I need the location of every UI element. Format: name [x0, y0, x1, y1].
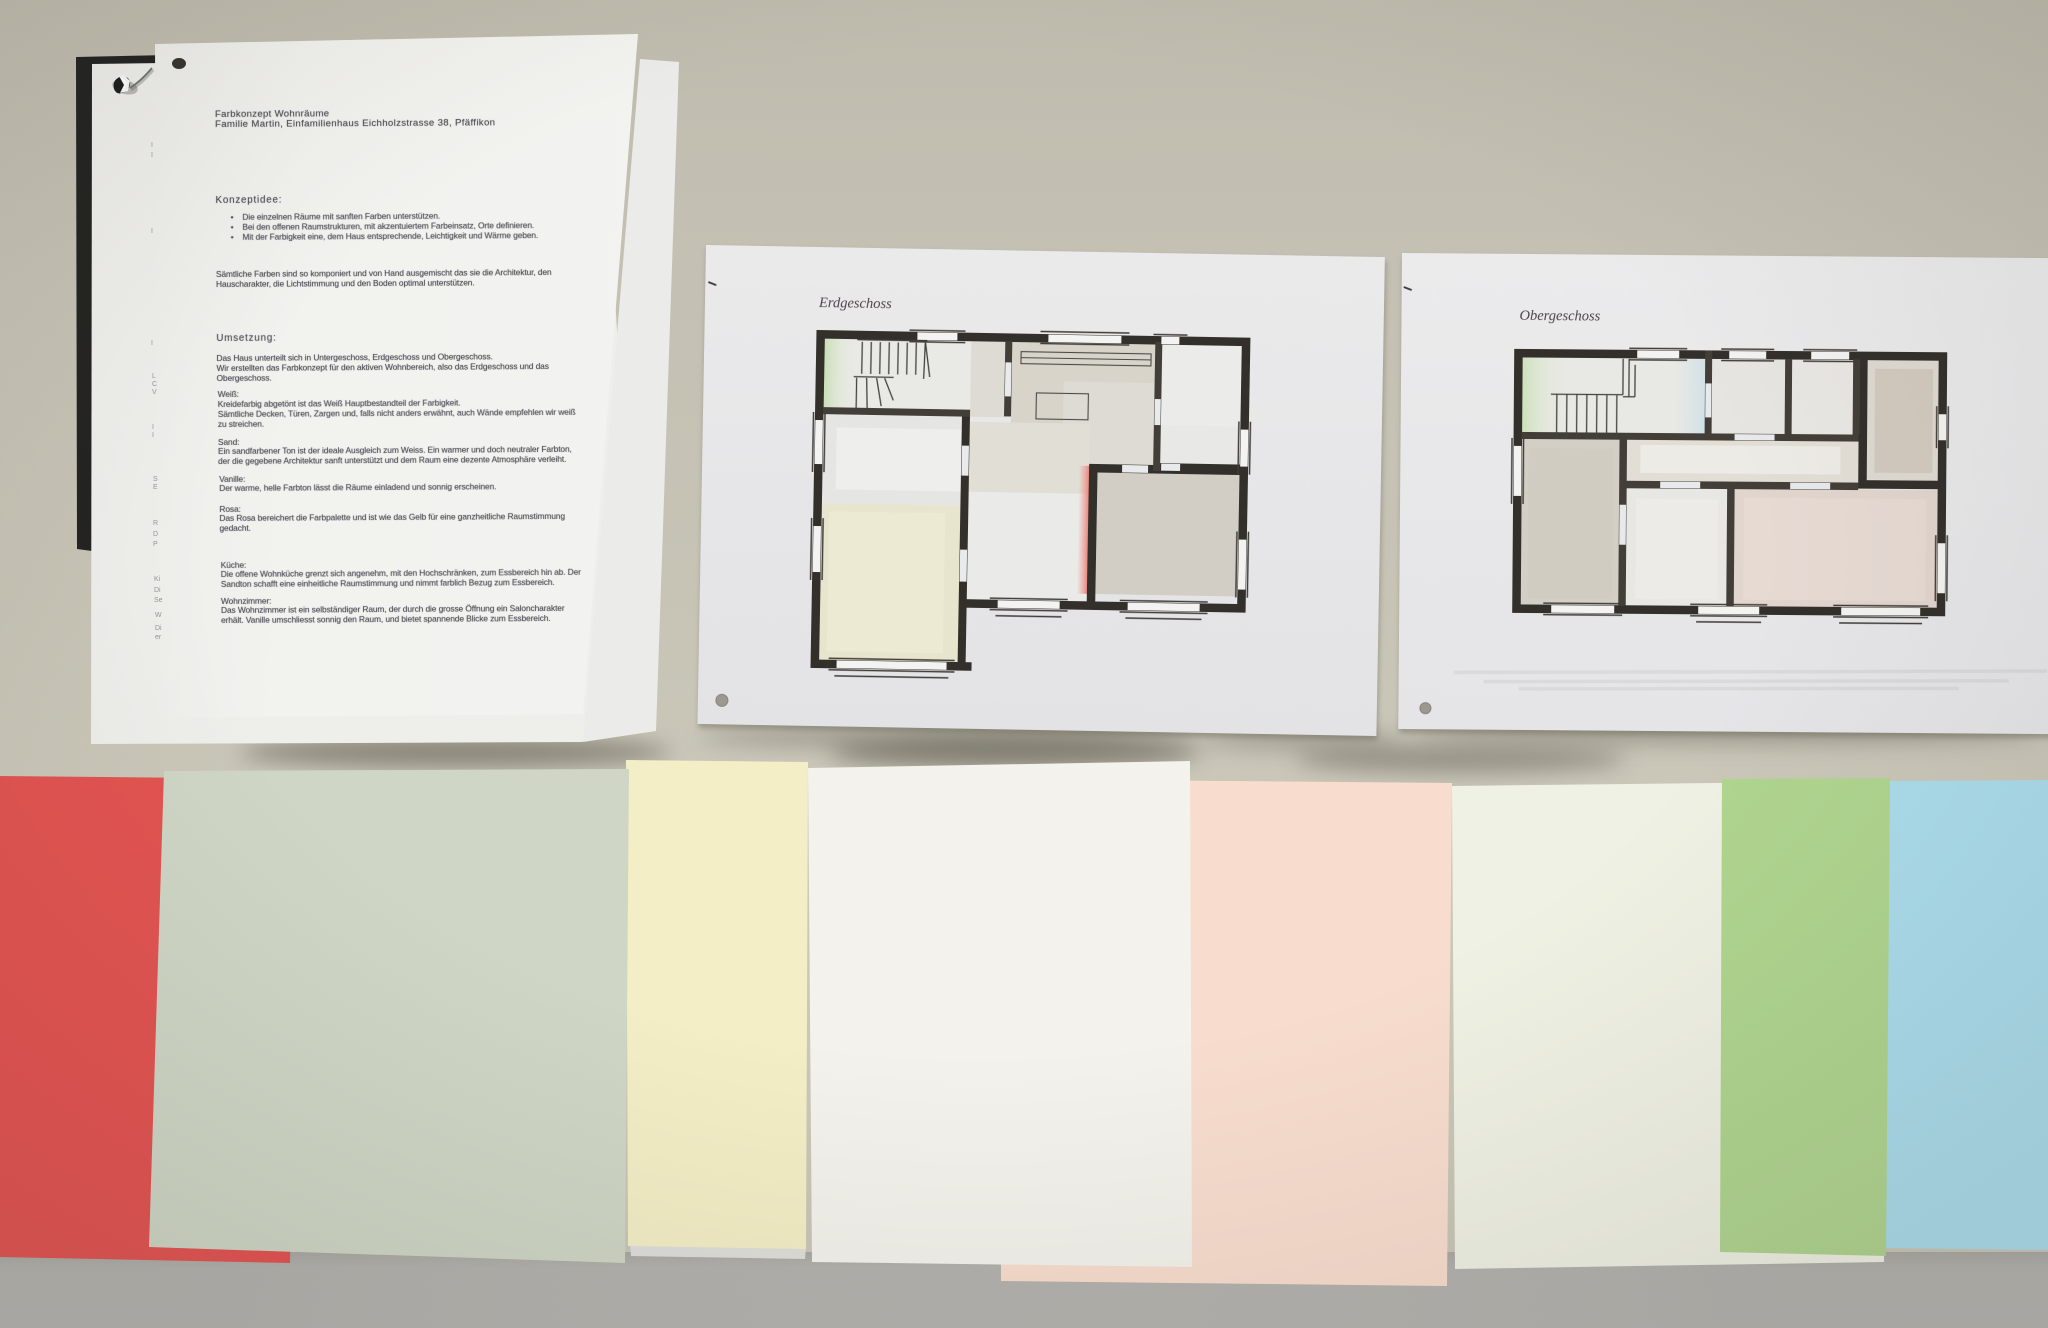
svg-text:Erdgeschoss: Erdgeschoss — [818, 295, 892, 312]
svg-text:Obergeschoss: Obergeschoss — [1519, 308, 1600, 325]
